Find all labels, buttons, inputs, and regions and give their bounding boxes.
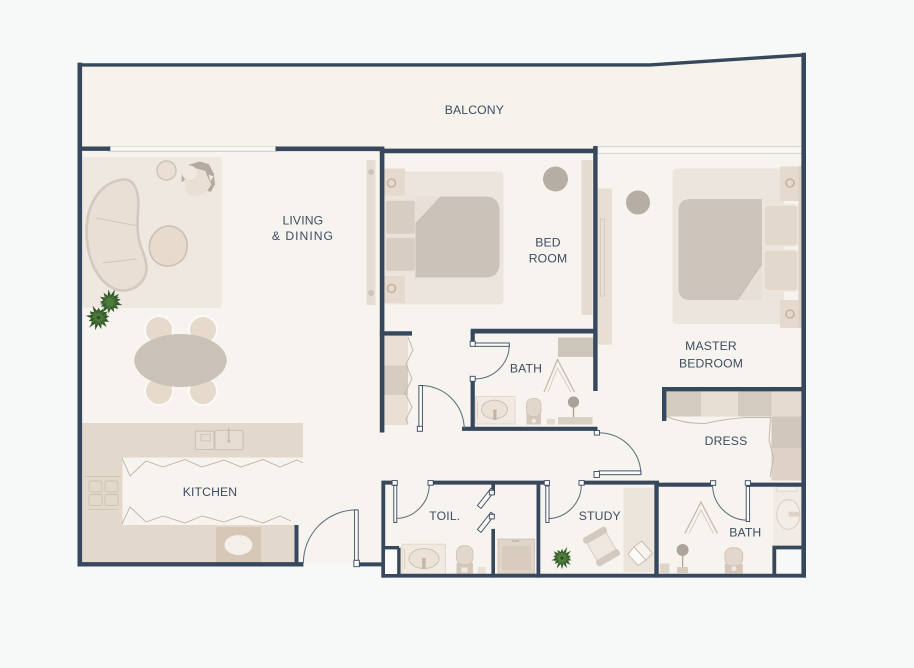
svg-text:KITCHEN: KITCHEN [183, 485, 238, 499]
svg-text:BATH: BATH [510, 362, 542, 376]
svg-text:STUDY: STUDY [579, 509, 621, 523]
svg-text:MASTER: MASTER [685, 339, 737, 353]
svg-text:BED: BED [535, 236, 561, 250]
svg-text:BALCONY: BALCONY [445, 103, 504, 117]
svg-text:LIVING: LIVING [282, 213, 323, 227]
svg-text:BEDROOM: BEDROOM [679, 357, 743, 371]
svg-text:& DINING: & DINING [272, 229, 334, 243]
svg-text:DRESS: DRESS [705, 434, 748, 448]
svg-text:ROOM: ROOM [529, 252, 568, 266]
svg-text:TOIL.: TOIL. [429, 509, 460, 523]
svg-text:BATH: BATH [729, 526, 761, 540]
